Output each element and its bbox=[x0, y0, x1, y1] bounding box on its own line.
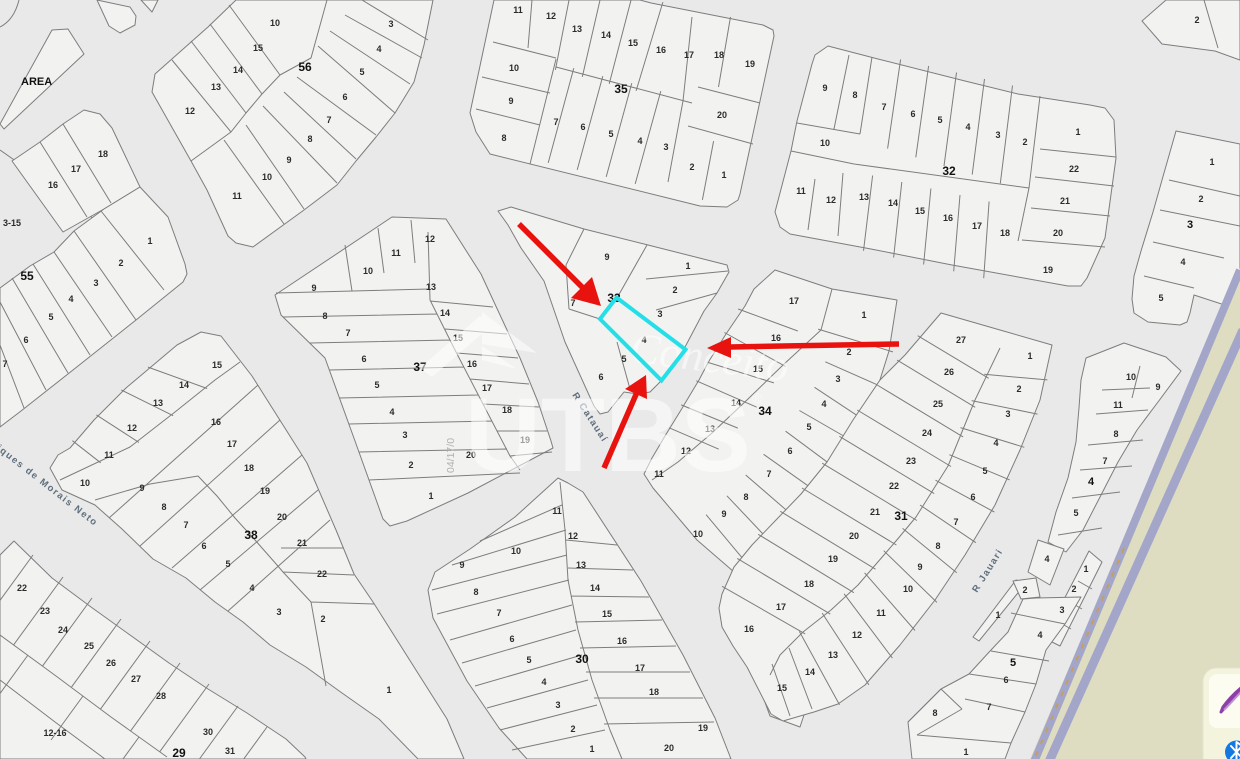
svg-text:10: 10 bbox=[270, 18, 280, 28]
svg-text:10: 10 bbox=[363, 266, 373, 276]
svg-text:9: 9 bbox=[721, 509, 726, 519]
svg-text:24: 24 bbox=[922, 428, 932, 438]
svg-text:1: 1 bbox=[1027, 351, 1032, 361]
svg-text:4: 4 bbox=[821, 399, 826, 409]
svg-text:20: 20 bbox=[1053, 228, 1063, 238]
svg-text:21: 21 bbox=[1060, 196, 1070, 206]
svg-text:22: 22 bbox=[1069, 164, 1079, 174]
svg-text:27: 27 bbox=[131, 674, 141, 684]
svg-text:6: 6 bbox=[509, 634, 514, 644]
svg-text:11: 11 bbox=[104, 450, 114, 460]
svg-text:10: 10 bbox=[820, 138, 830, 148]
svg-text:23: 23 bbox=[906, 456, 916, 466]
svg-text:12: 12 bbox=[127, 423, 137, 433]
svg-text:15: 15 bbox=[212, 360, 222, 370]
svg-text:5: 5 bbox=[937, 115, 942, 125]
svg-text:28: 28 bbox=[156, 691, 166, 701]
svg-text:6: 6 bbox=[580, 122, 585, 132]
svg-text:8: 8 bbox=[473, 587, 478, 597]
svg-text:19: 19 bbox=[745, 59, 755, 69]
svg-text:4: 4 bbox=[1044, 554, 1049, 564]
svg-text:1: 1 bbox=[685, 261, 690, 271]
svg-text:17: 17 bbox=[776, 602, 786, 612]
svg-text:18: 18 bbox=[244, 463, 254, 473]
svg-text:18: 18 bbox=[714, 50, 724, 60]
svg-text:UTBS: UTBS bbox=[465, 377, 751, 494]
svg-text:16: 16 bbox=[943, 213, 953, 223]
svg-text:13: 13 bbox=[572, 24, 582, 34]
svg-text:10: 10 bbox=[903, 584, 913, 594]
svg-text:4: 4 bbox=[376, 44, 381, 54]
svg-text:2: 2 bbox=[320, 614, 325, 624]
svg-text:1: 1 bbox=[386, 685, 391, 695]
svg-text:3: 3 bbox=[93, 278, 98, 288]
svg-text:®: ® bbox=[752, 390, 763, 406]
svg-text:5: 5 bbox=[608, 129, 613, 139]
svg-text:9: 9 bbox=[604, 252, 609, 262]
svg-text:3: 3 bbox=[657, 309, 662, 319]
svg-text:7: 7 bbox=[345, 328, 350, 338]
svg-text:8: 8 bbox=[852, 90, 857, 100]
svg-text:10: 10 bbox=[262, 172, 272, 182]
svg-text:9: 9 bbox=[286, 155, 291, 165]
svg-text:8: 8 bbox=[501, 133, 506, 143]
svg-text:4: 4 bbox=[389, 407, 394, 417]
svg-text:8: 8 bbox=[307, 134, 312, 144]
svg-text:5: 5 bbox=[982, 466, 987, 476]
svg-text:22: 22 bbox=[317, 569, 327, 579]
svg-text:7: 7 bbox=[326, 115, 331, 125]
svg-text:11: 11 bbox=[552, 506, 562, 516]
svg-text:14: 14 bbox=[179, 380, 189, 390]
svg-text:5: 5 bbox=[359, 67, 364, 77]
svg-text:6: 6 bbox=[910, 109, 915, 119]
svg-text:2: 2 bbox=[1198, 194, 1203, 204]
svg-text:7: 7 bbox=[1102, 456, 1107, 466]
svg-text:11: 11 bbox=[513, 5, 523, 15]
svg-text:16: 16 bbox=[211, 417, 221, 427]
svg-text:2: 2 bbox=[570, 724, 575, 734]
svg-text:13: 13 bbox=[426, 282, 436, 292]
svg-text:4: 4 bbox=[1037, 630, 1042, 640]
svg-text:15: 15 bbox=[628, 38, 638, 48]
svg-text:13: 13 bbox=[211, 82, 221, 92]
svg-text:25: 25 bbox=[84, 641, 94, 651]
svg-text:30: 30 bbox=[575, 652, 589, 666]
svg-text:56: 56 bbox=[298, 60, 312, 74]
svg-text:1: 1 bbox=[1209, 157, 1214, 167]
svg-text:1: 1 bbox=[1083, 564, 1088, 574]
svg-text:22: 22 bbox=[889, 481, 899, 491]
svg-text:14: 14 bbox=[601, 30, 611, 40]
svg-text:17: 17 bbox=[635, 663, 645, 673]
svg-text:13: 13 bbox=[576, 560, 586, 570]
svg-text:11: 11 bbox=[876, 608, 886, 618]
svg-text:15: 15 bbox=[253, 43, 263, 53]
svg-text:12: 12 bbox=[546, 11, 556, 21]
svg-text:9: 9 bbox=[508, 96, 513, 106]
svg-text:10: 10 bbox=[509, 63, 519, 73]
svg-text:6: 6 bbox=[23, 335, 28, 345]
svg-text:2: 2 bbox=[118, 258, 123, 268]
svg-text:15: 15 bbox=[777, 683, 787, 693]
svg-text:2: 2 bbox=[1022, 585, 1027, 595]
svg-text:20: 20 bbox=[277, 512, 287, 522]
svg-text:15: 15 bbox=[602, 609, 612, 619]
svg-text:5: 5 bbox=[48, 312, 53, 322]
svg-text:6: 6 bbox=[361, 354, 366, 364]
svg-text:6: 6 bbox=[342, 92, 347, 102]
svg-text:9: 9 bbox=[139, 483, 144, 493]
svg-text:9: 9 bbox=[311, 283, 316, 293]
svg-text:2: 2 bbox=[689, 162, 694, 172]
svg-text:21: 21 bbox=[297, 538, 307, 548]
svg-text:7: 7 bbox=[570, 298, 575, 308]
svg-text:04/17/0: 04/17/0 bbox=[445, 438, 457, 473]
svg-text:13: 13 bbox=[828, 650, 838, 660]
svg-text:26: 26 bbox=[944, 367, 954, 377]
svg-text:1: 1 bbox=[963, 747, 968, 757]
svg-text:12: 12 bbox=[185, 106, 195, 116]
svg-text:3-15: 3-15 bbox=[3, 218, 21, 228]
svg-text:14: 14 bbox=[590, 583, 600, 593]
svg-text:17: 17 bbox=[227, 439, 237, 449]
svg-text:12: 12 bbox=[826, 195, 836, 205]
svg-text:6: 6 bbox=[201, 541, 206, 551]
svg-text:18: 18 bbox=[1000, 228, 1010, 238]
svg-text:3: 3 bbox=[1187, 219, 1193, 231]
svg-text:2: 2 bbox=[1194, 15, 1199, 25]
svg-text:16: 16 bbox=[467, 359, 477, 369]
svg-text:1: 1 bbox=[995, 610, 1000, 620]
svg-text:2: 2 bbox=[672, 285, 677, 295]
svg-text:23: 23 bbox=[40, 606, 50, 616]
svg-text:20: 20 bbox=[717, 110, 727, 120]
svg-text:17: 17 bbox=[684, 50, 694, 60]
svg-text:24: 24 bbox=[58, 625, 68, 635]
svg-text:34: 34 bbox=[758, 404, 772, 418]
svg-text:19: 19 bbox=[1043, 265, 1053, 275]
svg-text:14: 14 bbox=[888, 198, 898, 208]
svg-text:8: 8 bbox=[1113, 429, 1118, 439]
svg-text:7: 7 bbox=[553, 117, 558, 127]
svg-text:13: 13 bbox=[859, 192, 869, 202]
svg-text:AREA: AREA bbox=[21, 76, 52, 88]
svg-text:5: 5 bbox=[225, 559, 230, 569]
svg-text:19: 19 bbox=[698, 723, 708, 733]
svg-text:1: 1 bbox=[147, 236, 152, 246]
svg-text:14: 14 bbox=[440, 308, 450, 318]
svg-text:9: 9 bbox=[1155, 382, 1160, 392]
svg-text:7: 7 bbox=[881, 102, 886, 112]
svg-text:12: 12 bbox=[425, 234, 435, 244]
svg-text:16: 16 bbox=[48, 180, 58, 190]
svg-text:22: 22 bbox=[17, 583, 27, 593]
svg-text:3: 3 bbox=[276, 607, 281, 617]
svg-text:2: 2 bbox=[408, 460, 413, 470]
svg-text:31: 31 bbox=[894, 509, 908, 523]
svg-text:7: 7 bbox=[2, 359, 7, 369]
svg-text:4: 4 bbox=[68, 294, 73, 304]
svg-text:1: 1 bbox=[428, 491, 433, 501]
svg-text:8: 8 bbox=[322, 311, 327, 321]
svg-text:6: 6 bbox=[787, 446, 792, 456]
svg-text:17: 17 bbox=[71, 164, 81, 174]
svg-text:4: 4 bbox=[541, 677, 546, 687]
svg-text:20: 20 bbox=[664, 743, 674, 753]
svg-text:3: 3 bbox=[663, 142, 668, 152]
svg-text:3: 3 bbox=[835, 374, 840, 384]
svg-text:3: 3 bbox=[995, 130, 1000, 140]
svg-text:4: 4 bbox=[249, 583, 254, 593]
svg-text:3: 3 bbox=[1059, 605, 1064, 615]
svg-text:8: 8 bbox=[161, 502, 166, 512]
svg-text:9: 9 bbox=[459, 560, 464, 570]
svg-text:18: 18 bbox=[649, 687, 659, 697]
svg-text:18: 18 bbox=[804, 579, 814, 589]
svg-text:16: 16 bbox=[617, 636, 627, 646]
svg-text:14: 14 bbox=[805, 667, 815, 677]
svg-text:25: 25 bbox=[933, 399, 943, 409]
svg-text:14: 14 bbox=[233, 65, 243, 75]
svg-text:3: 3 bbox=[1005, 409, 1010, 419]
svg-text:7: 7 bbox=[953, 517, 958, 527]
svg-text:1: 1 bbox=[1075, 127, 1080, 137]
svg-text:18: 18 bbox=[98, 149, 108, 159]
svg-text:4: 4 bbox=[1180, 257, 1185, 267]
svg-text:2: 2 bbox=[1016, 384, 1021, 394]
svg-text:3: 3 bbox=[555, 700, 560, 710]
svg-text:4: 4 bbox=[993, 438, 998, 448]
svg-text:5: 5 bbox=[526, 655, 531, 665]
svg-text:10: 10 bbox=[1126, 372, 1136, 382]
svg-text:20: 20 bbox=[849, 531, 859, 541]
svg-text:19: 19 bbox=[828, 554, 838, 564]
svg-text:12: 12 bbox=[852, 630, 862, 640]
svg-text:21: 21 bbox=[870, 507, 880, 517]
svg-text:27: 27 bbox=[956, 335, 966, 345]
svg-text:1: 1 bbox=[721, 170, 726, 180]
svg-text:10: 10 bbox=[511, 546, 521, 556]
svg-text:8: 8 bbox=[935, 541, 940, 551]
svg-text:7: 7 bbox=[986, 702, 991, 712]
svg-text:12-16: 12-16 bbox=[43, 728, 66, 738]
svg-text:3: 3 bbox=[388, 19, 393, 29]
svg-text:4: 4 bbox=[1088, 476, 1095, 488]
svg-text:11: 11 bbox=[391, 248, 401, 258]
svg-text:30: 30 bbox=[203, 727, 213, 737]
svg-text:15: 15 bbox=[915, 206, 925, 216]
svg-text:4: 4 bbox=[965, 122, 970, 132]
svg-text:3: 3 bbox=[402, 430, 407, 440]
svg-text:4: 4 bbox=[637, 136, 642, 146]
svg-text:13: 13 bbox=[153, 398, 163, 408]
svg-text:2: 2 bbox=[846, 347, 851, 357]
svg-text:5: 5 bbox=[374, 380, 379, 390]
svg-text:9: 9 bbox=[917, 562, 922, 572]
svg-text:5: 5 bbox=[806, 422, 811, 432]
svg-text:32: 32 bbox=[942, 164, 956, 178]
svg-text:2: 2 bbox=[1071, 584, 1076, 594]
svg-text:5: 5 bbox=[1073, 508, 1078, 518]
svg-text:16: 16 bbox=[656, 45, 666, 55]
svg-text:6: 6 bbox=[1003, 675, 1008, 685]
svg-text:29: 29 bbox=[172, 746, 186, 759]
svg-text:7: 7 bbox=[496, 608, 501, 618]
svg-text:17: 17 bbox=[789, 296, 799, 306]
svg-text:16: 16 bbox=[744, 624, 754, 634]
svg-text:2: 2 bbox=[1022, 137, 1027, 147]
svg-text:11: 11 bbox=[1113, 400, 1123, 410]
svg-text:38: 38 bbox=[244, 528, 258, 542]
svg-text:5: 5 bbox=[1158, 293, 1163, 303]
svg-text:1: 1 bbox=[589, 744, 594, 754]
svg-text:7: 7 bbox=[766, 469, 771, 479]
svg-text:35: 35 bbox=[614, 82, 628, 96]
svg-text:5: 5 bbox=[1010, 657, 1016, 669]
svg-text:11: 11 bbox=[232, 191, 242, 201]
svg-text:10: 10 bbox=[693, 529, 703, 539]
svg-text:26: 26 bbox=[106, 658, 116, 668]
svg-text:55: 55 bbox=[20, 269, 34, 283]
svg-text:17: 17 bbox=[972, 221, 982, 231]
svg-text:12: 12 bbox=[568, 531, 578, 541]
svg-text:10: 10 bbox=[80, 478, 90, 488]
svg-text:5: 5 bbox=[621, 354, 626, 364]
svg-text:7: 7 bbox=[183, 520, 188, 530]
svg-text:6: 6 bbox=[970, 492, 975, 502]
svg-text:8: 8 bbox=[932, 708, 937, 718]
svg-text:9: 9 bbox=[822, 83, 827, 93]
svg-text:1: 1 bbox=[861, 310, 866, 320]
svg-text:19: 19 bbox=[260, 486, 270, 496]
svg-text:31: 31 bbox=[225, 746, 235, 756]
svg-text:11: 11 bbox=[796, 186, 806, 196]
